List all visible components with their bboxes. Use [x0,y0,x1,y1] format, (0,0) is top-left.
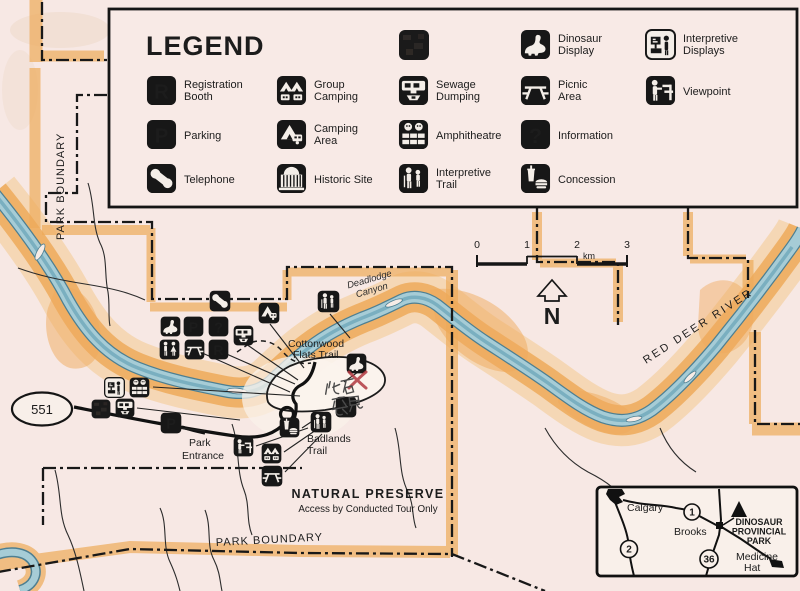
legend-item-dinosaur-display: Dinosaur Display [521,30,602,59]
north-label: N [544,303,561,329]
concession-icon [521,164,550,193]
legend-label: Interpretive [436,167,491,179]
map-icon-concession [280,418,300,438]
legend-panel: LEGEND Registration Booth Parking Teleph… [109,9,797,207]
park-entrance-label: Park [189,437,211,449]
viewpoint-icon [646,76,675,105]
inset-brooks-label: Brooks [674,526,707,538]
highway-551-number: 551 [31,402,53,417]
legend-label: Area [558,91,582,103]
legend-label: Area [314,135,338,147]
legend-icon-unidentified [399,30,429,60]
legend-label: Concession [558,174,615,186]
map-icon-viewpoint [234,437,254,457]
map-icon-dinosaur-display [161,317,181,337]
highway-1-number: 1 [689,508,695,519]
park-map-scan: R P ? [0,0,800,591]
group-camping-icon [277,76,306,105]
inset-map: 1 2 36 Calgary Brooks Medicine Hat DINOS… [597,487,797,576]
map-icon-sewage-dumping [116,399,135,418]
legend-label: Amphitheatre [436,130,501,142]
inset-medicine-hat-label2: Hat [744,562,760,574]
legend-label: Parking [184,130,221,142]
legend-label: Sewage [436,79,476,91]
scale-tick-3: 3 [624,239,630,251]
legend-label: Dumping [436,91,480,103]
natural-preserve-title: NATURAL PRESERVE [292,487,445,501]
legend-label: Camping [314,123,358,135]
legend-item-interpretive-displays: Interpretive Displays [646,30,738,59]
legend-label: Picnic [558,79,588,91]
highway-551-shield: 551 [12,393,72,426]
map-icon-telephone [210,291,231,312]
map-icon-group-camping [262,444,282,464]
map-icon-parking [161,413,182,434]
legend-label: Telephone [184,174,235,186]
registration-booth-icon [147,76,176,105]
inset-park-name: DINOSAUR [736,517,784,527]
historic-site-icon [277,164,306,193]
amphitheatre-icon [399,120,428,149]
telephone-icon [147,164,176,193]
scale-tick-2: 2 [574,239,580,251]
legend-label: Booth [184,91,213,103]
legend-label: Registration [184,79,243,91]
interpretive-trail-icon [399,164,428,193]
legend-label: Viewpoint [683,86,731,98]
camping-area-icon [277,120,306,149]
legend-label: Camping [314,91,358,103]
interpretive-displays-icon [646,30,675,59]
legend-label: Interpretive [683,33,738,45]
map-icon-registration-booth [209,340,229,360]
legend-item-sewage-dumping: Sewage Dumping [399,76,480,105]
information-icon [521,120,550,149]
park-entrance-label2: Entrance [182,450,224,462]
highway-2-number: 2 [626,545,632,556]
inset-park-name3: PARK [747,536,772,546]
map-icon-unidentified [92,400,111,419]
map-icon-picnic-area [185,340,205,360]
legend-label: Historic Site [314,174,373,186]
dinosaur-display-icon [521,30,550,59]
park-boundary-label-left: PARK BOUNDARY [55,133,67,240]
natural-preserve-subtitle: Access by Conducted Tour Only [298,504,437,515]
inset-park-location-dot [716,522,723,529]
badlands-trail-label: Badlands [307,433,351,445]
parking-icon [147,120,176,149]
legend-title: LEGEND [146,31,265,61]
scale-tick-0: 0 [474,239,480,251]
legend-label: Trail [436,179,457,191]
scan-smudge [10,12,110,48]
scale-tick-1: 1 [524,239,530,251]
badlands-trail-label2: Trail [307,445,327,457]
map-icon-information [209,317,229,337]
map-icon-camping-area [259,303,280,324]
inset-calgary-label: Calgary [627,502,664,514]
sewage-dumping-icon [399,76,428,105]
map-icon-interpretive-displays [105,378,125,398]
map-icon-sewage-dumping [234,326,254,346]
inset-park-name2: PROVINCIAL [732,527,787,537]
highway-36-number: 36 [703,555,715,566]
picnic-area-icon [521,76,550,105]
legend-label: Group [314,79,345,91]
map-icon-parking [184,317,204,337]
map-icon-interpretive-trail [318,291,340,313]
legend-label: Information [558,130,613,142]
legend-label: Dinosaur [558,33,602,45]
map-icon-picnic-area [262,466,283,487]
legend-label: Display [558,45,595,57]
map-icon-washrooms [160,340,180,360]
map-icon-interpretive-trail [311,412,332,433]
map-icon-amphitheatre [130,378,150,398]
scale-unit: km [583,251,595,261]
map-icon-dinosaur-display [347,354,367,374]
cottonwood-trail-label2: Flats Trail [293,349,339,361]
legend-label: Displays [683,45,725,57]
map-svg: R P ? [0,0,800,591]
